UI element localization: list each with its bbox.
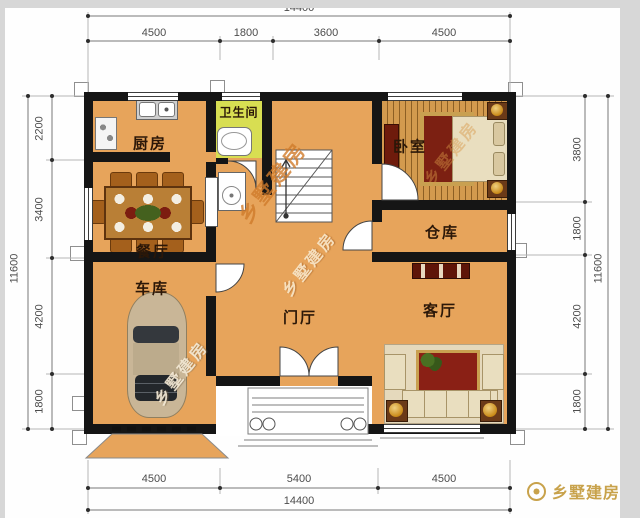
kitchen-sink-basin-left-icon	[139, 102, 156, 117]
living-window-icon	[384, 424, 480, 433]
room-label-bathroom: 卫生间	[219, 104, 258, 121]
sofa-armchair-icon	[384, 354, 406, 390]
wall-bedroom-south	[372, 200, 507, 210]
bathtub-inner-icon	[221, 132, 247, 150]
photo-edge-right	[620, 0, 640, 518]
room-label-bedroom: 卧室	[393, 136, 427, 157]
wall-foyer-front-left	[216, 376, 280, 386]
dim-bottom-seg: 4500	[131, 473, 177, 486]
wall-bottom-garage	[84, 424, 216, 434]
dim-left-seg: 3400	[34, 187, 47, 233]
brand-logo-text: 乡墅建房	[552, 479, 620, 503]
porch-area	[216, 386, 372, 436]
brand-logo-icon	[527, 482, 546, 501]
dim-top-seg: 1800	[223, 27, 269, 40]
nightstand-lamp-icon	[491, 182, 503, 194]
wall-bedroom-west-a	[372, 101, 382, 164]
dim-top-seg: 4500	[131, 27, 177, 40]
wall-left	[84, 92, 93, 434]
dim-right-seg: 3800	[572, 127, 585, 173]
wall-hall-west-a	[206, 101, 216, 152]
side-table-lamp-icon	[483, 403, 497, 417]
bed-pillow-icon	[493, 152, 505, 176]
fridge-icon	[95, 117, 117, 150]
kitchen-window-icon	[128, 92, 178, 101]
photo-edge-left	[0, 8, 5, 518]
bedroom-window-icon	[388, 92, 462, 101]
wall-right	[507, 92, 516, 434]
pilaster-post	[70, 246, 85, 261]
wall-hall-west-d	[206, 296, 216, 376]
dim-top-seg: 3600	[303, 27, 349, 40]
dim-right-total: 11600	[593, 246, 606, 292]
dining-window-icon	[84, 188, 93, 240]
wall-foyer-front-right	[338, 376, 372, 386]
tv-cabinet-icon	[412, 263, 470, 279]
brand-logo: 乡墅建房	[527, 479, 620, 503]
dim-left-seg: 1800	[34, 379, 47, 425]
bathroom-window-icon	[222, 92, 260, 101]
wall-kitchen-south	[84, 152, 170, 162]
dim-bottom-seg: 5400	[276, 473, 322, 486]
dim-right-seg: 1800	[572, 379, 585, 425]
room-label-garage: 车库	[135, 278, 169, 299]
dim-top-seg: 4500	[421, 27, 467, 40]
photo-edge-top	[0, 0, 640, 8]
sofa-armchair-icon	[482, 354, 504, 390]
car-windshield-icon	[133, 326, 179, 343]
room-label-living: 客厅	[423, 300, 457, 321]
wall-storage-south	[372, 252, 507, 262]
dim-left-total: 11600	[9, 246, 22, 292]
dim-right-seg: 4200	[572, 294, 585, 340]
dim-right-seg: 1800	[572, 206, 585, 252]
wall-hall-west-b	[206, 162, 216, 177]
driveway-ramp	[86, 434, 228, 458]
dim-bottom-total: 14400	[276, 495, 322, 508]
kitchen-sink-basin-right-icon	[158, 102, 175, 117]
bed-pillow-icon	[493, 122, 505, 146]
floor-plan-canvas: 14400 4500 1800 3600 4500 4500 5400 4500…	[0, 0, 640, 518]
room-label-foyer: 门厅	[283, 307, 317, 328]
dim-bottom-seg: 4500	[421, 473, 467, 486]
room-label-dining: 餐厅	[136, 241, 170, 262]
side-table-lamp-icon	[389, 403, 403, 417]
wall-bath-south-stub	[216, 158, 228, 164]
nightstand-lamp-icon	[491, 104, 503, 116]
room-label-kitchen: 厨房	[133, 133, 167, 154]
storage-window-icon	[507, 214, 516, 250]
dining-table-icon	[104, 186, 192, 240]
room-label-storage: 仓库	[425, 222, 459, 243]
plant-icon	[420, 352, 442, 372]
dim-left-seg: 4200	[34, 294, 47, 340]
sliding-door-icon	[205, 177, 218, 227]
dim-left-seg: 2200	[34, 106, 47, 152]
